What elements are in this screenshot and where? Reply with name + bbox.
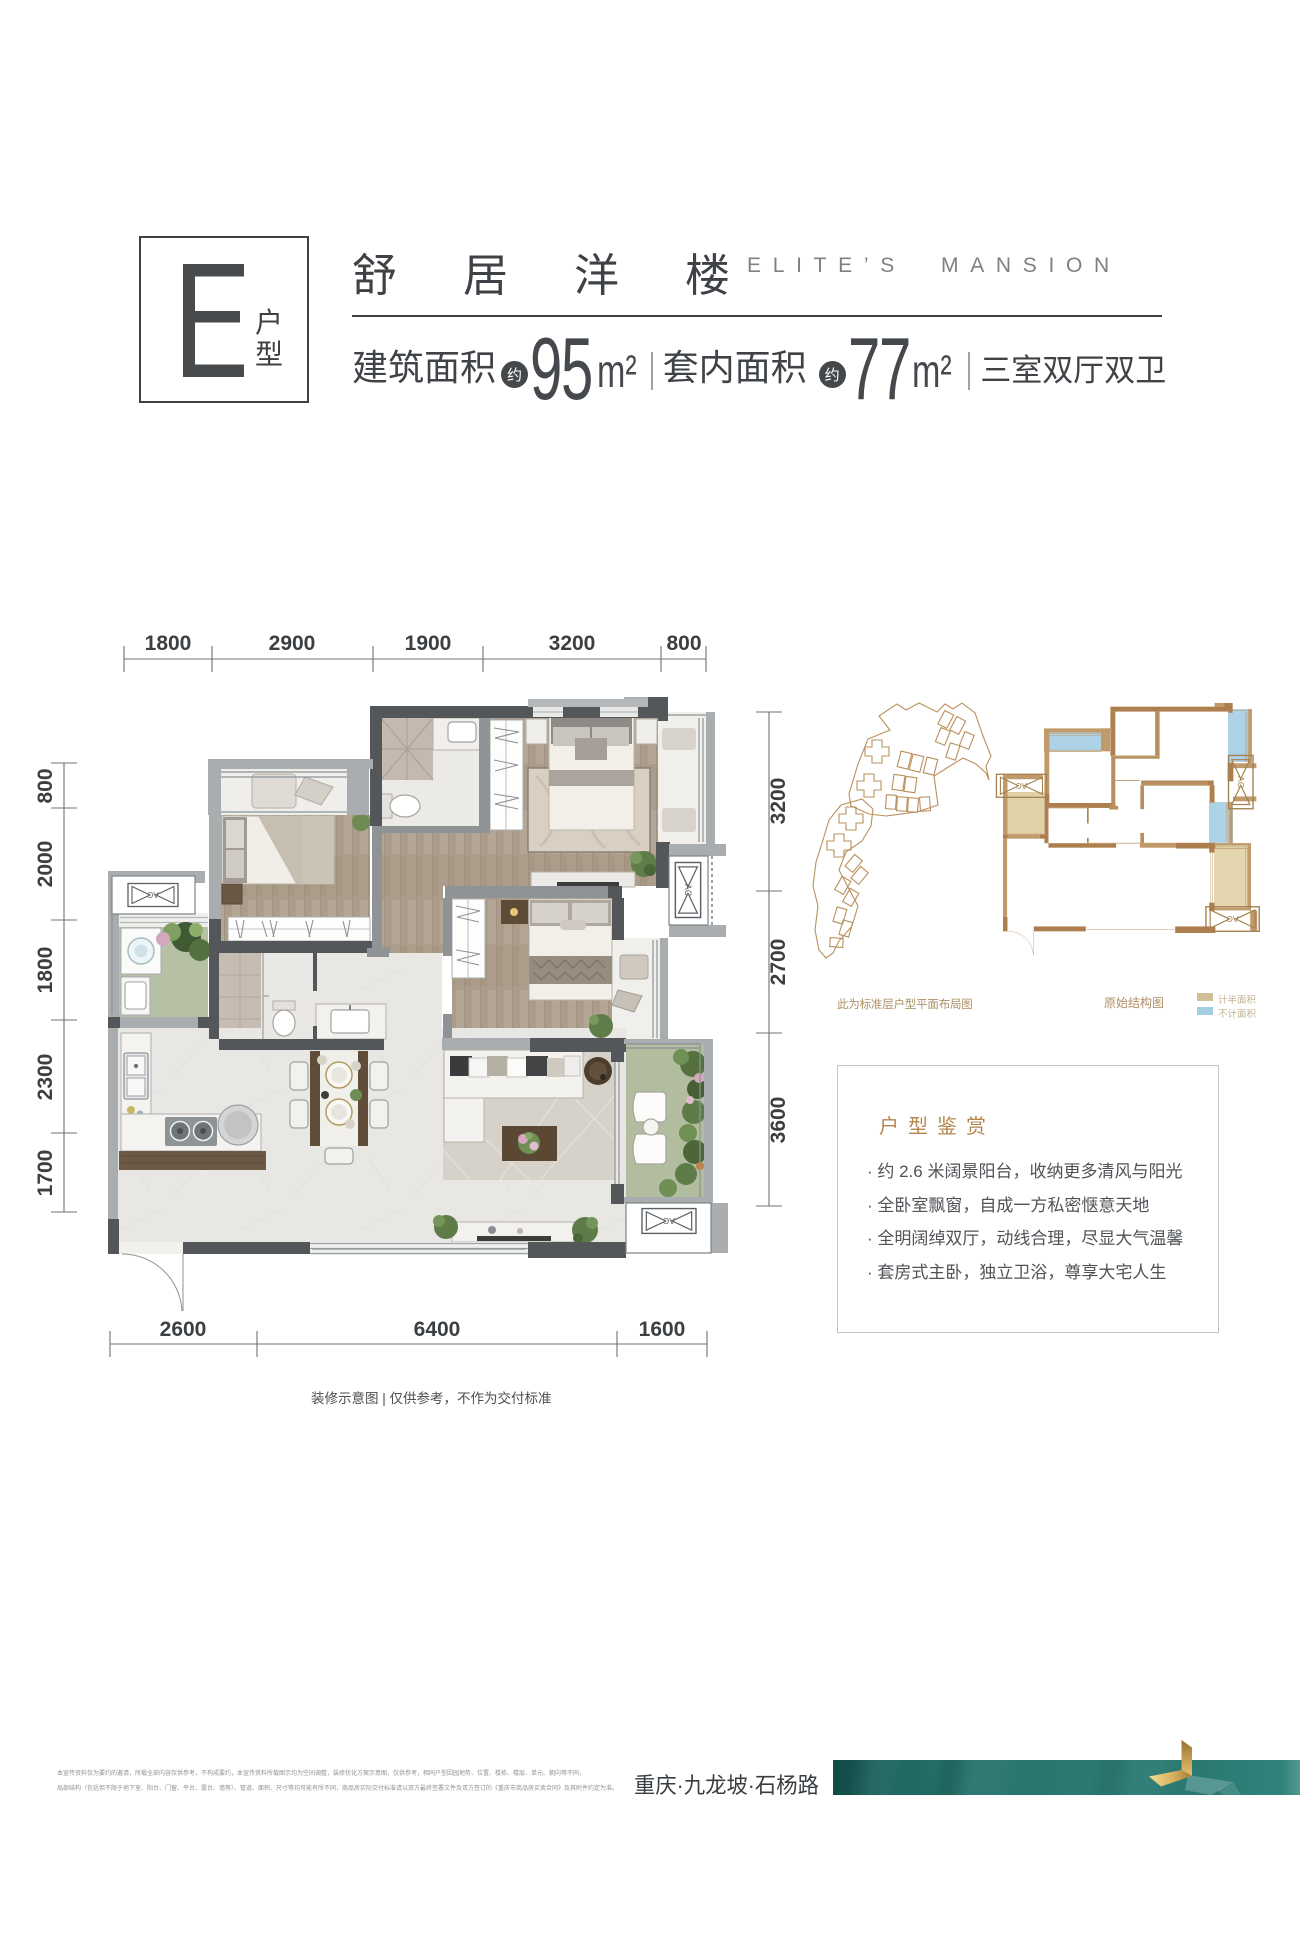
svg-text:2600: 2600: [160, 1318, 207, 1341]
svg-text:3600: 3600: [767, 1097, 790, 1144]
svg-text:800: 800: [34, 768, 57, 803]
svg-text:2000: 2000: [34, 841, 57, 888]
svg-text:3200: 3200: [767, 778, 790, 825]
svg-text:1800: 1800: [145, 632, 192, 655]
svg-text:3200: 3200: [549, 632, 596, 655]
svg-text:2900: 2900: [269, 632, 316, 655]
svg-text:1700: 1700: [34, 1150, 57, 1197]
svg-text:800: 800: [666, 632, 701, 655]
svg-text:2300: 2300: [34, 1054, 57, 1101]
svg-text:2700: 2700: [767, 939, 790, 986]
svg-text:1600: 1600: [639, 1318, 686, 1341]
svg-text:6400: 6400: [414, 1318, 461, 1341]
svg-text:1900: 1900: [405, 632, 452, 655]
svg-text:1800: 1800: [34, 947, 57, 994]
